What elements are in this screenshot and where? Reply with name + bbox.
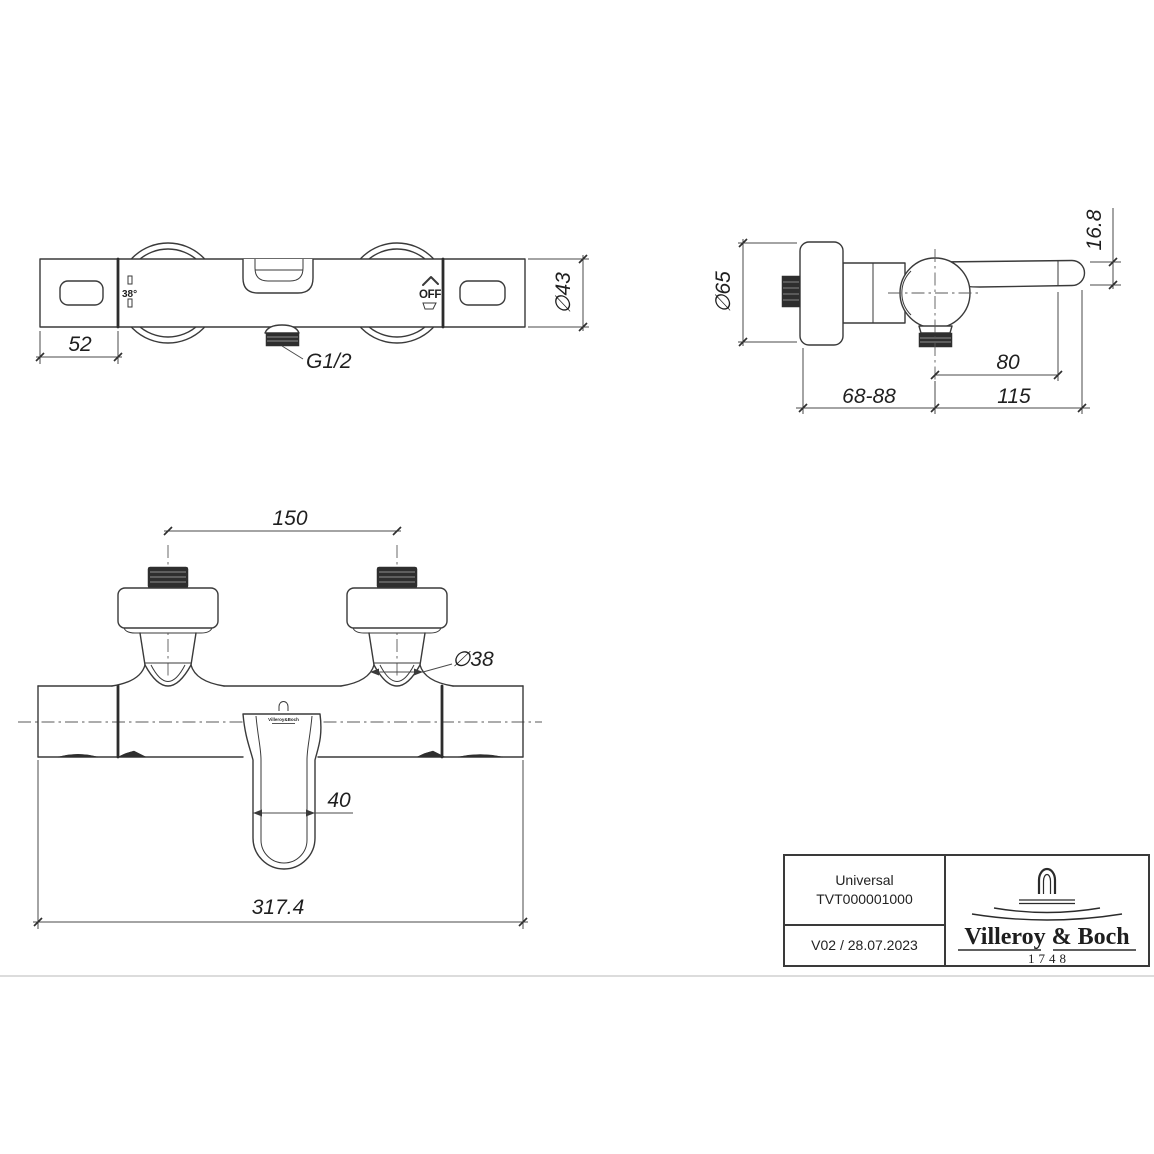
dim-body-diameter-label: ∅43 [552,272,575,314]
revision-date: V02 / 28.07.2023 [811,936,918,955]
content-bottom-divider [0,975,1154,977]
brand-logo: Villeroy & Boch 1748 [946,856,1148,965]
dim-plate-diameter-label: ∅65 [712,271,735,313]
dim-connector-diameter: ∅38 [370,648,494,676]
brand-year: 1748 [1028,951,1070,965]
faucet-arch-icon [972,869,1122,920]
title-block-brand-cell: Villeroy & Boch 1748 [946,856,1148,965]
drawing-canvas: 38° OFF G1/2 [0,0,1154,1154]
dim-lever-height-label: 16.8 [1083,209,1106,250]
dim-lever-height: 16.8 [1083,208,1121,289]
wall-connector [782,276,800,307]
mini-brand-logo: Villeroy&Boch [268,702,299,724]
dim-connection-spacing: 150 [164,507,401,535]
title-block-info-column: Universal TVT000001000 V02 / 28.07.2023 [785,856,946,965]
title-block: Universal TVT000001000 V02 / 28.07.2023 … [783,854,1150,967]
product-name: Universal [835,871,893,890]
technical-drawing-page: 38° OFF G1/2 [0,0,1154,1154]
mini-brand-logo-text: Villeroy&Boch [268,717,299,722]
spout-bottom: Villeroy&Boch [243,702,321,870]
dim-cap-width-label: 52 [68,333,92,356]
title-block-revision-cell: V02 / 28.07.2023 [785,926,944,965]
dim-connector-diameter-label: ∅38 [452,648,494,671]
wall-plate [800,242,843,345]
dim-cap-width: 52 [36,331,122,364]
off-label: OFF [419,289,441,301]
g-half-connector: G1/2 [265,325,352,373]
dim-handle-length-label: 115 [997,385,1031,408]
spout-front [243,259,313,293]
bottom-view: Villeroy&Boch 150 ∅38 [18,507,542,929]
side-view: ∅65 16.8 80 [712,208,1121,414]
article-number: TVT000001000 [816,890,913,909]
dim-overall-width-label: 317.4 [252,896,305,919]
dim-body-diameter: ∅43 [528,255,589,331]
thread-size-label: G1/2 [306,350,352,373]
dim-handle-offset-label: 80 [996,351,1020,374]
front-view: 38° OFF G1/2 [36,243,589,373]
title-block-product-cell: Universal TVT000001000 [785,856,944,926]
dim-wall-distance-label: 68-88 [842,385,896,408]
temp-stop-label: 38° [122,289,137,300]
brand-name: Villeroy & Boch [964,924,1129,950]
dim-spout-width-label: 40 [327,789,351,812]
dim-connection-spacing-label: 150 [272,507,307,530]
side-outlet-connector [919,326,952,347]
